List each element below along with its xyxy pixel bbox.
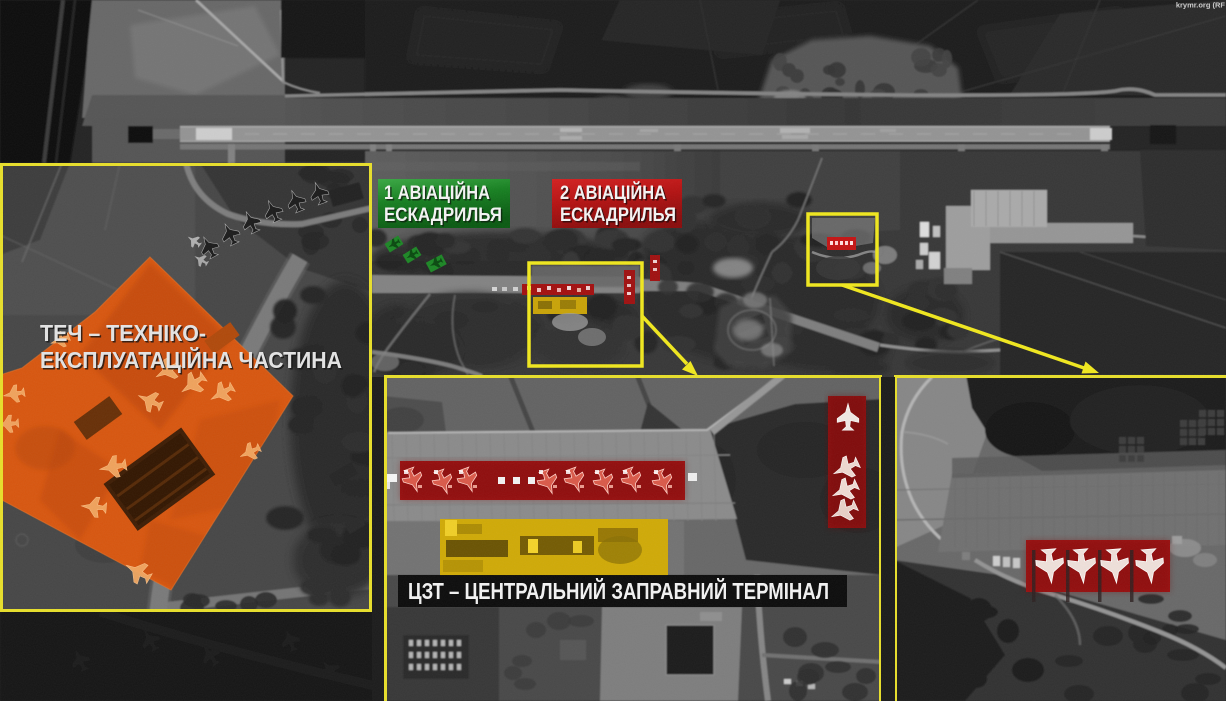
svg-text:krymr.org (RF: krymr.org (RF [1176, 1, 1226, 10]
